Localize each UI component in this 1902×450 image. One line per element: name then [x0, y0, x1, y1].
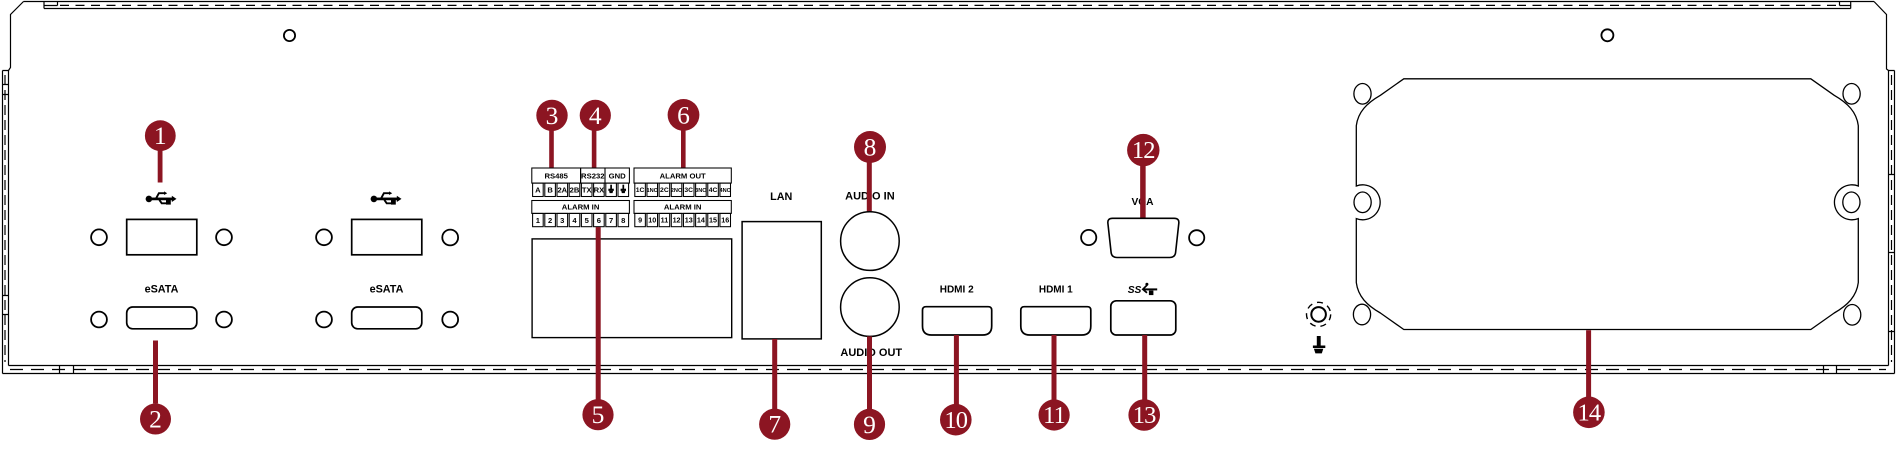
svg-text:11: 11 [661, 216, 669, 225]
svg-text:12: 12 [673, 216, 681, 225]
svg-text:3C: 3C [684, 187, 693, 194]
svg-text:14: 14 [1577, 399, 1600, 426]
svg-text:10: 10 [944, 407, 967, 434]
svg-text:8: 8 [864, 132, 877, 161]
svg-text:13: 13 [1133, 402, 1156, 429]
svg-text:8: 8 [621, 216, 625, 225]
svg-text:B: B [547, 186, 553, 195]
svg-text:3NO: 3NO [695, 188, 707, 194]
svg-text:14: 14 [697, 216, 705, 225]
svg-text:2: 2 [548, 216, 552, 225]
svg-text:3: 3 [546, 101, 559, 130]
svg-text:RX: RX [594, 186, 605, 195]
svg-text:2C: 2C [660, 187, 669, 194]
svg-text:1C: 1C [636, 187, 645, 194]
svg-text:13: 13 [685, 216, 693, 225]
svg-text:2B: 2B [570, 186, 580, 195]
svg-text:5: 5 [585, 216, 590, 225]
svg-text:RS232: RS232 [581, 171, 605, 180]
svg-text:6: 6 [597, 216, 601, 225]
svg-text:1: 1 [154, 121, 167, 150]
svg-text:7: 7 [609, 216, 613, 225]
svg-text:4: 4 [572, 216, 577, 225]
svg-text:12: 12 [1132, 137, 1155, 164]
svg-text:HDMI 2: HDMI 2 [940, 285, 974, 296]
svg-text:2: 2 [149, 404, 162, 433]
svg-text:RS485: RS485 [544, 171, 568, 180]
svg-text:SS: SS [1128, 285, 1142, 296]
svg-text:1: 1 [536, 216, 541, 225]
svg-text:4: 4 [589, 101, 602, 130]
svg-text:10: 10 [648, 216, 656, 225]
svg-text:eSATA: eSATA [145, 283, 179, 295]
svg-text:LAN: LAN [770, 191, 792, 203]
svg-text:9: 9 [638, 216, 642, 225]
svg-text:11: 11 [1043, 402, 1065, 429]
svg-text:ALARM IN: ALARM IN [562, 203, 600, 212]
svg-text:ALARM OUT: ALARM OUT [660, 171, 706, 180]
svg-text:TX: TX [582, 186, 592, 195]
svg-text:3: 3 [560, 216, 564, 225]
svg-text:5: 5 [592, 400, 605, 429]
svg-text:4NO: 4NO [719, 188, 731, 194]
svg-text:15: 15 [709, 216, 717, 225]
svg-text:HDMI 1: HDMI 1 [1039, 285, 1073, 296]
svg-text:2A: 2A [557, 186, 567, 195]
svg-text:2NO: 2NO [671, 188, 683, 194]
svg-text:9: 9 [863, 410, 876, 439]
svg-text:4C: 4C [709, 187, 718, 194]
svg-text:eSATA: eSATA [370, 283, 404, 295]
svg-text:6: 6 [677, 100, 690, 129]
svg-text:GND: GND [609, 171, 627, 180]
svg-text:1NO: 1NO [646, 188, 658, 194]
svg-text:16: 16 [721, 216, 729, 225]
svg-text:ALARM IN: ALARM IN [664, 203, 702, 212]
svg-text:7: 7 [768, 410, 781, 439]
svg-text:A: A [535, 186, 541, 195]
